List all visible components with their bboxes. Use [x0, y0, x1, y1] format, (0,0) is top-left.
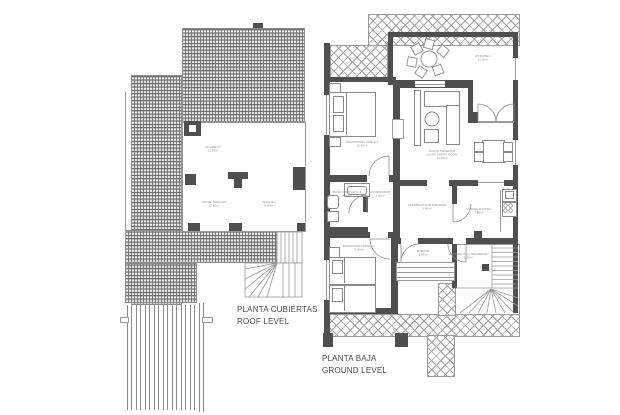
opening-living-vestibule [427, 180, 449, 186]
sink [327, 211, 339, 222]
label-pergola: PÉRGOLA 8.40m² [246, 201, 292, 208]
entrance-column [482, 264, 489, 271]
pergola-beam [172, 305, 177, 410]
roof-top-vent [253, 23, 263, 28]
roof-mark-bottom-2 [229, 223, 242, 231]
label-porch2: PORCHE 3.40m² [400, 250, 446, 257]
roof-mark-t-bar [228, 172, 248, 179]
pergola-beam [163, 305, 168, 410]
label-solarium: SOLARIUM 21.50m² [190, 146, 236, 153]
french-door-sill [478, 121, 514, 123]
ground-plan-title: PLANTA BAJA GROUND LEVEL [322, 353, 387, 377]
window-left-bedroom1 [326, 95, 327, 135]
stove [502, 202, 517, 217]
bed2b-line [344, 285, 345, 311]
wall-niche [392, 119, 404, 139]
pergola-beam [190, 305, 195, 410]
coffee-table [425, 112, 439, 126]
dining-chair [503, 142, 513, 152]
door-entrance-gap [453, 238, 466, 244]
dining-chair [503, 152, 513, 162]
porch2-steps [396, 262, 455, 281]
plan-linework-overlay [0, 0, 620, 415]
dining-table [482, 140, 505, 163]
wall-kitchen-left [452, 186, 457, 204]
pillow [333, 115, 344, 132]
label-torre-terraza: TORRE TERRAZA 12.80m² [191, 201, 237, 208]
chair [407, 57, 417, 67]
french-door-right [496, 104, 514, 122]
wall-french-stub [468, 112, 478, 123]
bed2a-line [344, 257, 345, 283]
roof-tiles-bottom-wide [125, 230, 277, 263]
label-vestibule: VESTÍBULO DISTRIBUIDOR 5.40m² [404, 204, 450, 211]
bed-headboard-line [346, 92, 347, 135]
pergola-tie-right [202, 317, 213, 323]
terrace-left-patch [330, 45, 388, 79]
armchair [424, 129, 439, 143]
pergola-beam [181, 305, 186, 410]
nightstand [329, 83, 341, 93]
door-porch-living-line [415, 84, 445, 85]
terrace-bottom-protrusion [427, 335, 455, 377]
tv-unit [414, 90, 421, 146]
pillow [332, 288, 343, 302]
window-left-bedroom2 [326, 260, 327, 300]
pillow [332, 260, 343, 274]
roof-tiles-top [182, 28, 305, 122]
roof-tiles-bottom-narrow [125, 263, 197, 303]
pergola-beam [136, 305, 141, 410]
dining-chair [474, 142, 484, 152]
pergola-beam [145, 305, 150, 410]
dining-chair [474, 152, 484, 162]
terrace-bottom [327, 314, 520, 337]
label-porch: PORCHE 1 13.60m² [460, 55, 506, 62]
wall-porch-ext [468, 80, 473, 112]
label-bedroom2: DORMITORIO DOBLE 2 11.90m² [336, 245, 382, 252]
wall-porch-left [388, 37, 393, 85]
wall-porch-top [388, 32, 518, 37]
pergola-beam [154, 305, 159, 410]
roof-mark-square [185, 174, 196, 185]
door-arc-bedroom1 [369, 156, 389, 176]
kitchen-column [474, 231, 482, 239]
window-living-bottom [478, 180, 504, 186]
chair [432, 64, 444, 76]
window-living-bottom-line [478, 182, 504, 183]
window-right-living-line [515, 140, 516, 165]
roof-mark-t-stem [234, 179, 242, 188]
kitchen-sink-basin [505, 191, 514, 199]
round-table [421, 51, 437, 67]
door-porch2-gap [401, 238, 418, 244]
roof-mark-right-1 [293, 167, 305, 190]
label-entrance: ENTRADA HALL RECIBIDOR 4.30m² [445, 253, 491, 260]
wall-vestibule-left [393, 177, 400, 238]
roof-mark-bottom-1 [188, 223, 200, 231]
label-hall: DISTRIBUIDOR 2.60m² [357, 191, 403, 198]
window-right-porch-line [515, 58, 516, 80]
label-living: SALÓN COMEDOR LIVING DINING ROOM 24.60m² [419, 150, 465, 161]
label-kitchen: COCINA KITCHEN 7.80m² [456, 208, 502, 215]
chair [437, 45, 450, 58]
roof-mark-right-2 [297, 223, 305, 231]
french-door-left [478, 104, 496, 122]
chaise [446, 105, 460, 145]
door-bedroom1-gap [367, 175, 389, 182]
chair [415, 66, 428, 79]
roof-chimney-flue [189, 125, 196, 132]
roof-plan-title: PLANTA CUBIERTAS ROOF LEVEL [237, 304, 318, 328]
pergola-tie-left [120, 317, 129, 323]
wall-stub-bottom-left [323, 333, 333, 347]
door-bedroom2-gap [370, 232, 388, 238]
wall-stub-bottom-mid [395, 333, 408, 347]
pillow [333, 96, 344, 113]
roof-boundary-line [125, 92, 126, 240]
wall-bedroom1-top [324, 77, 396, 82]
label-bedroom1: DORMITORIO DOBLE 1 12.40m² [339, 141, 385, 148]
floor-plan-canvas: SOLARIUM 21.50m² TORRE TERRAZA 12.80m² P… [0, 0, 620, 415]
